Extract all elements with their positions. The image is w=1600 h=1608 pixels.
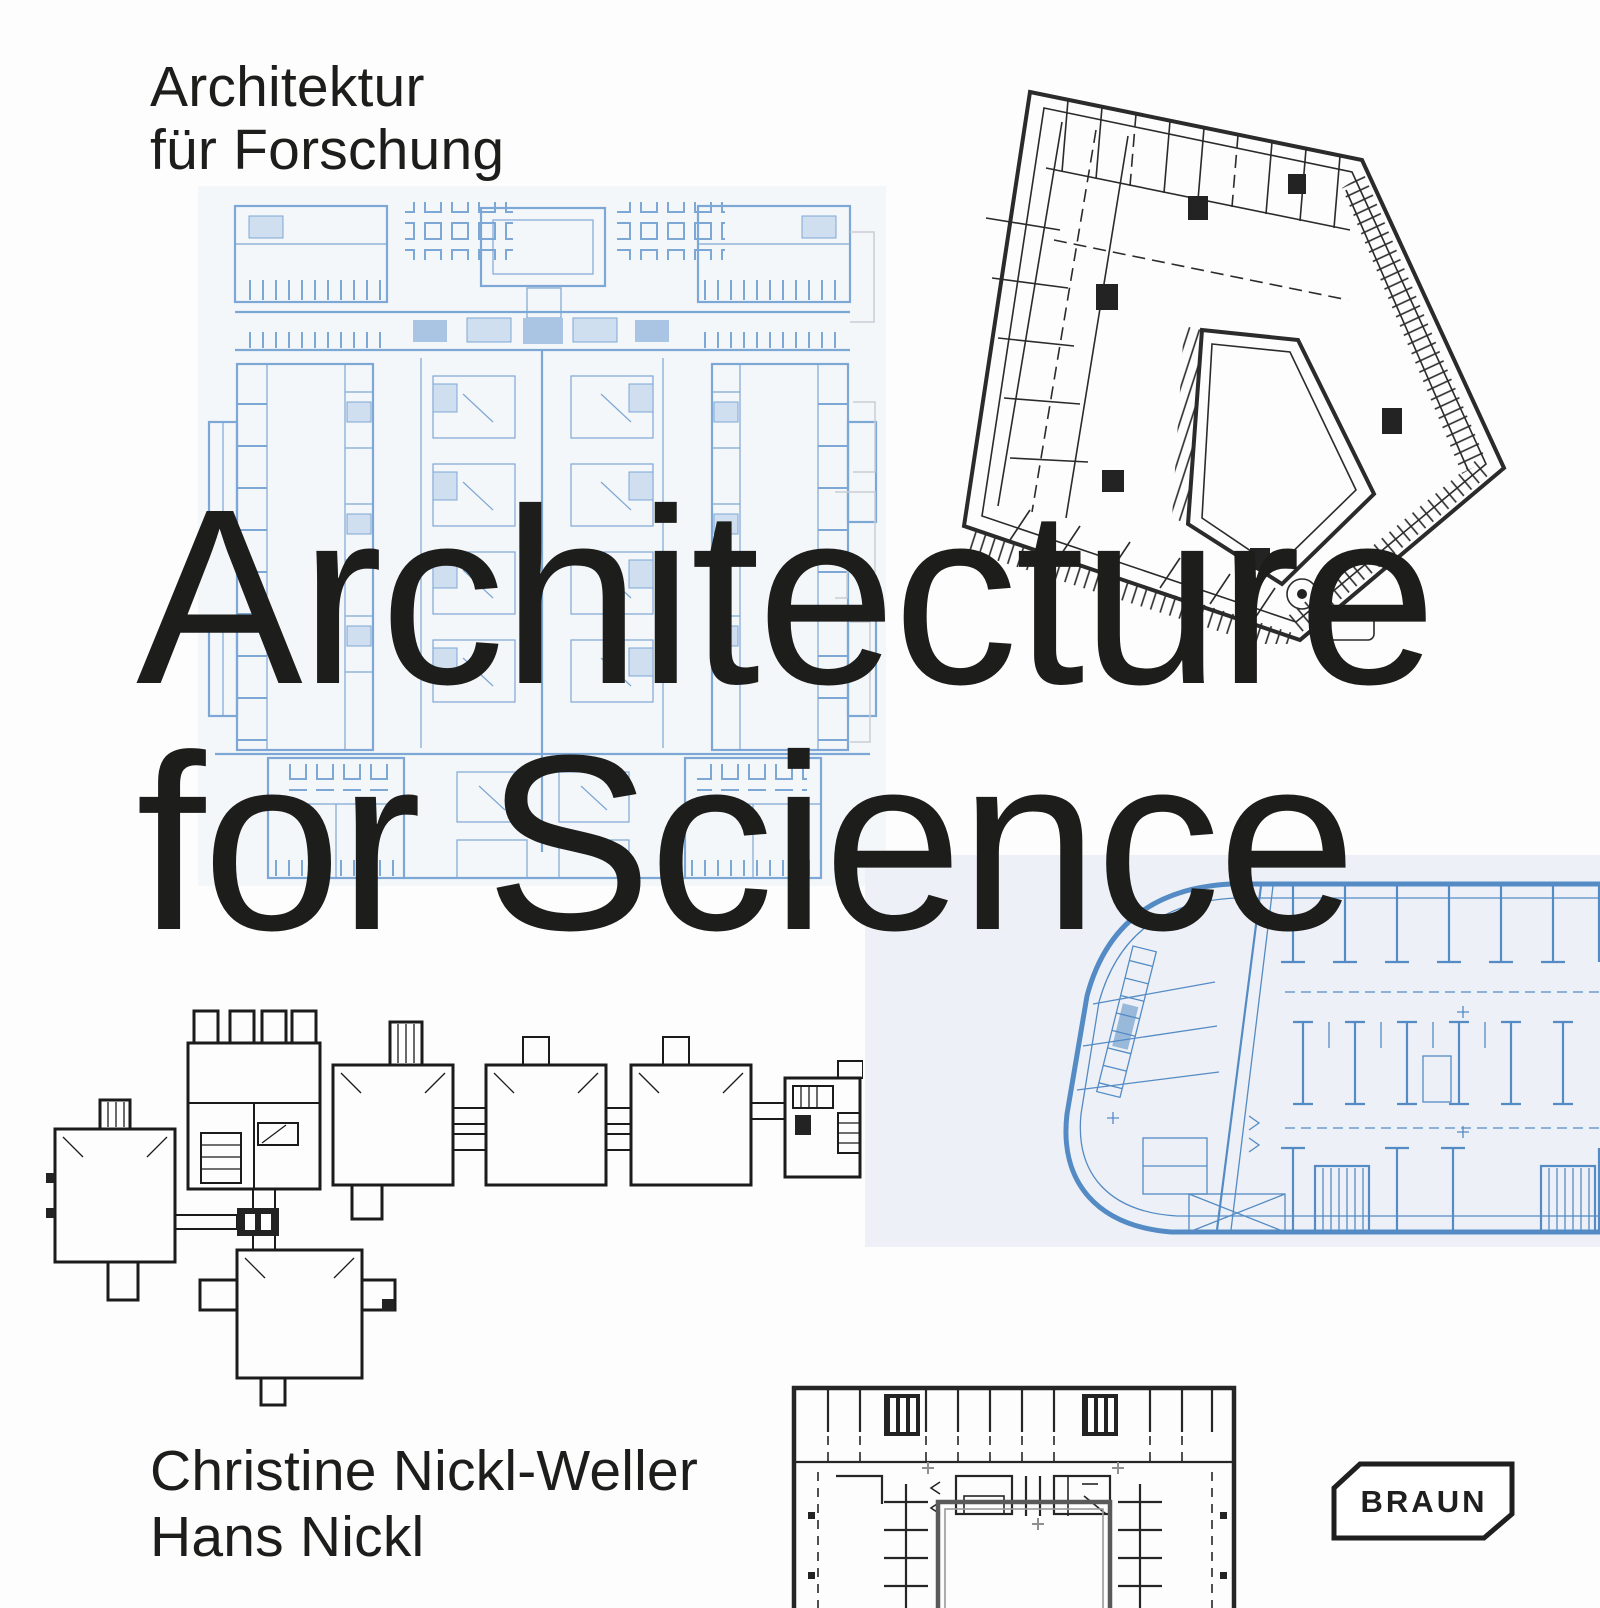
title-line2: for Science [136,703,1354,982]
publisher-logo-text: BRAUN [1361,1484,1488,1519]
kicker-line2: für Forschung [150,118,504,182]
author-line1: Christine Nickl-Weller [150,1439,698,1503]
floorplan-courtyard-black [788,1384,1248,1608]
author-line2: Hans Nickl [150,1505,424,1569]
title-line1: Architecture [136,457,1434,736]
book-title: Architecturefor Science [136,474,1434,966]
floorplan-pavilions-black [38,983,863,1408]
series-kicker: Architekturfür Forschung [150,56,504,182]
authors: Christine Nickl-WellerHans Nickl [150,1438,698,1570]
book-cover: Architekturfür Forschung Architecturefor… [0,0,1600,1608]
kicker-line1: Architektur [150,55,425,119]
publisher-logo: BRAUN [1330,1460,1516,1542]
